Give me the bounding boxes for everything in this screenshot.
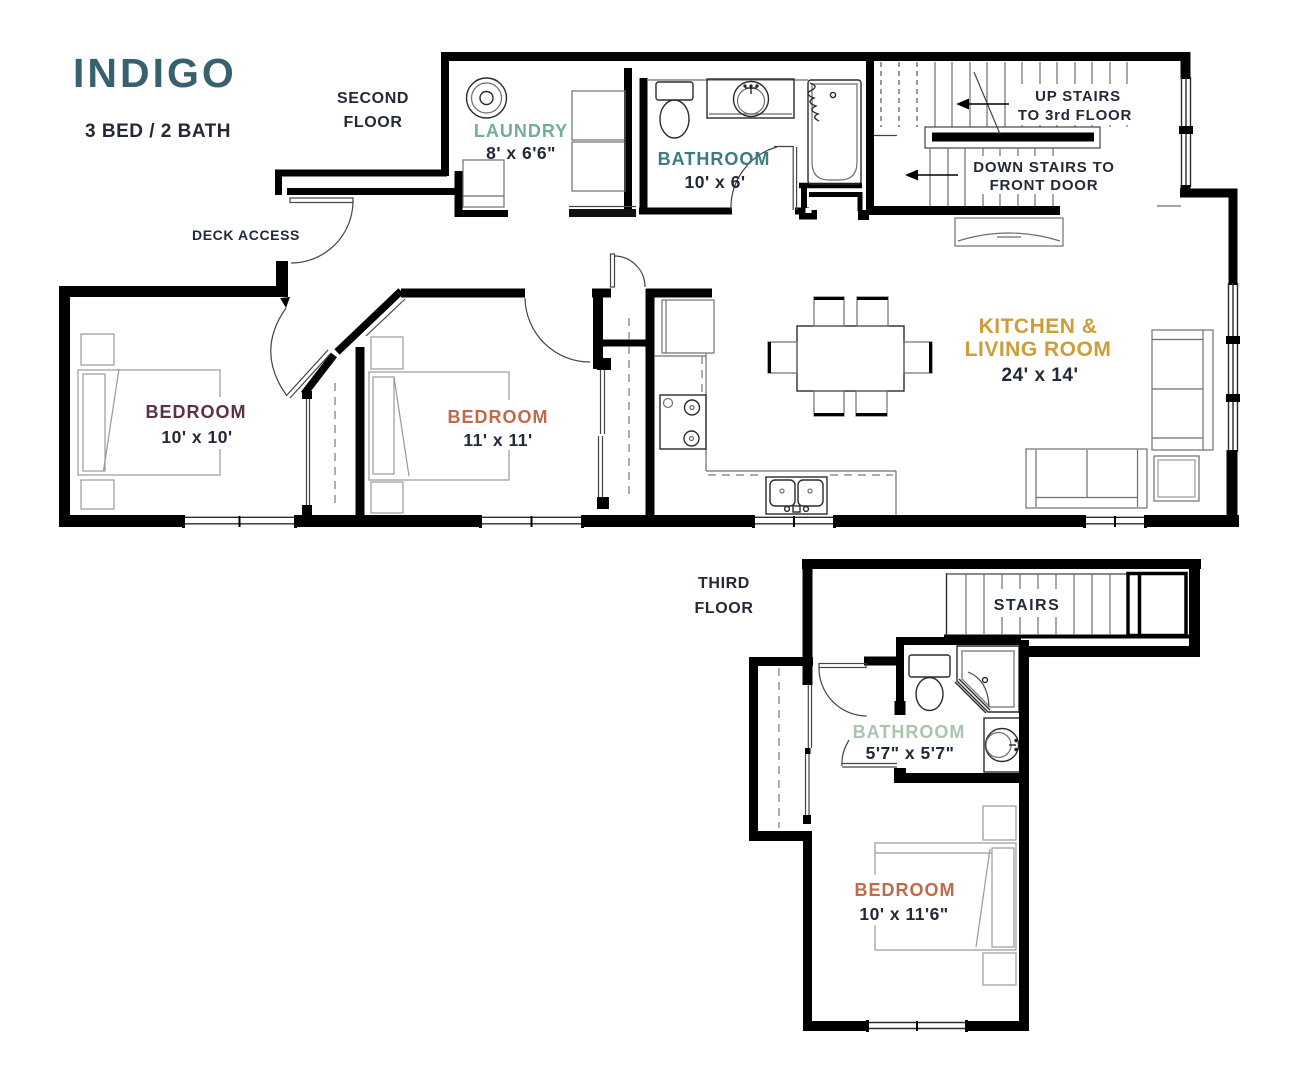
svg-text:SECOND: SECOND [337, 90, 409, 107]
svg-text:10' x 11'6": 10' x 11'6" [859, 904, 948, 924]
svg-text:DECK ACCESS: DECK ACCESS [192, 227, 300, 243]
svg-text:STAIRS: STAIRS [994, 597, 1060, 614]
svg-text:10' x 6': 10' x 6' [685, 172, 746, 192]
svg-text:THIRD: THIRD [698, 575, 750, 592]
svg-text:BEDROOM: BEDROOM [448, 407, 549, 427]
svg-text:BATHROOM: BATHROOM [658, 149, 771, 169]
svg-text:11' x 11': 11' x 11' [463, 430, 532, 450]
svg-text:BEDROOM: BEDROOM [146, 402, 247, 422]
svg-text:INDIGO: INDIGO [73, 50, 237, 96]
svg-text:TO 3rd FLOOR: TO 3rd FLOOR [1018, 107, 1132, 124]
svg-text:24' x 14': 24' x 14' [1002, 365, 1079, 386]
svg-text:8' x 6'6": 8' x 6'6" [486, 143, 556, 163]
svg-text:FLOOR: FLOOR [344, 114, 403, 131]
svg-text:10' x 10': 10' x 10' [161, 427, 232, 447]
svg-text:LAUNDRY: LAUNDRY [474, 121, 568, 141]
svg-text:5'7" x 5'7": 5'7" x 5'7" [866, 743, 955, 763]
svg-text:KITCHEN &: KITCHEN & [979, 315, 1098, 338]
svg-text:UP STAIRS: UP STAIRS [1035, 88, 1121, 105]
svg-text:DOWN STAIRS TO: DOWN STAIRS TO [973, 159, 1114, 176]
svg-text:3 BED / 2 BATH: 3 BED / 2 BATH [85, 121, 231, 142]
svg-text:BEDROOM: BEDROOM [855, 880, 956, 900]
svg-text:BATHROOM: BATHROOM [853, 722, 966, 742]
svg-text:FRONT DOOR: FRONT DOOR [990, 177, 1099, 194]
svg-text:FLOOR: FLOOR [695, 600, 754, 617]
svg-text:LIVING ROOM: LIVING ROOM [965, 338, 1112, 361]
